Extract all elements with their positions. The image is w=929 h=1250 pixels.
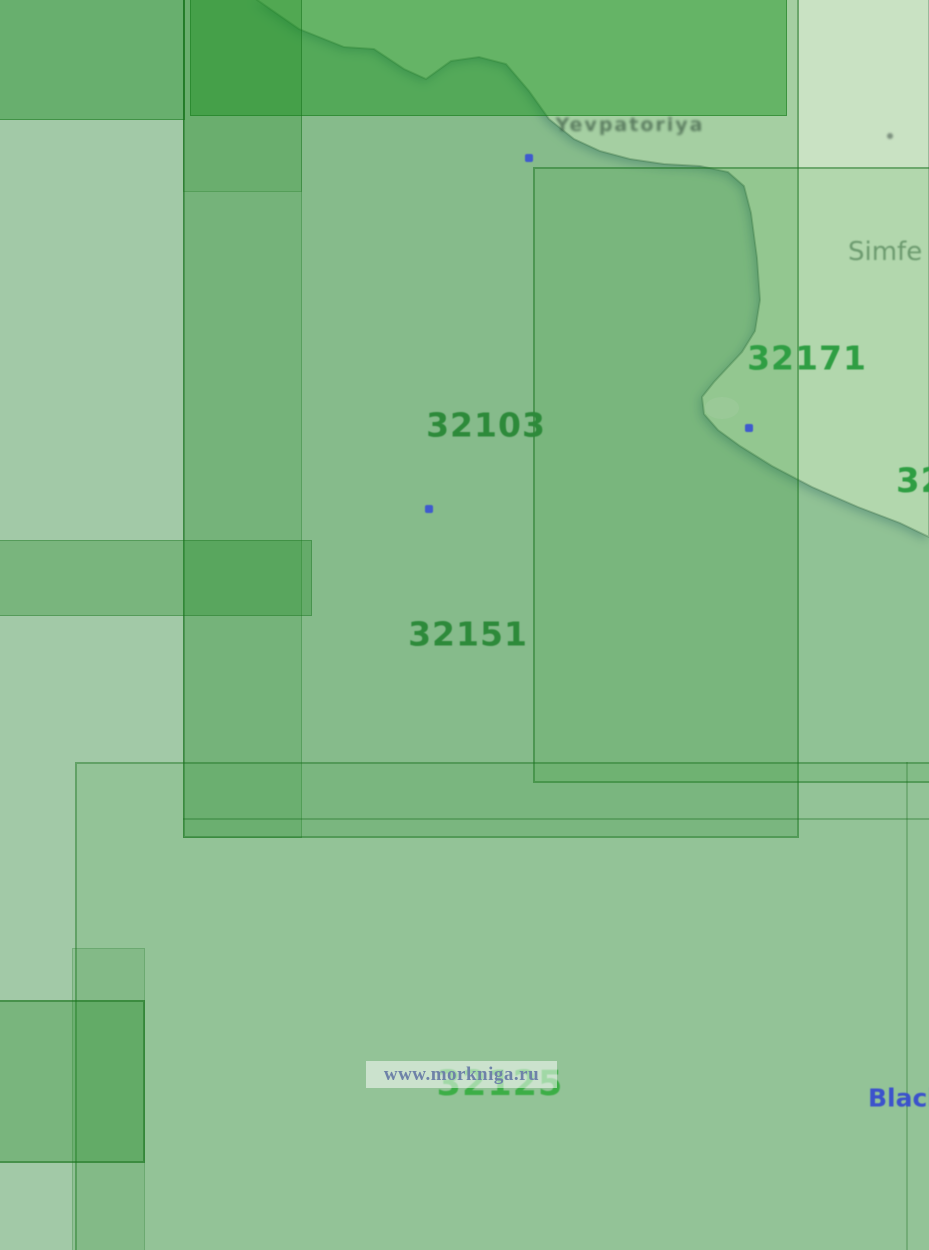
chart-point-marker xyxy=(745,424,753,432)
watermark-box: www.morkniga.ru xyxy=(366,1061,557,1088)
chart-point-marker xyxy=(525,154,533,162)
chart-point-marker xyxy=(425,505,433,513)
watermark-text: www.morkniga.ru xyxy=(384,1064,539,1086)
map-speck xyxy=(887,133,893,139)
nautical-chart-index-map: 32103 32151 32171 32125 32 Yevpatoriya S… xyxy=(0,0,929,1250)
